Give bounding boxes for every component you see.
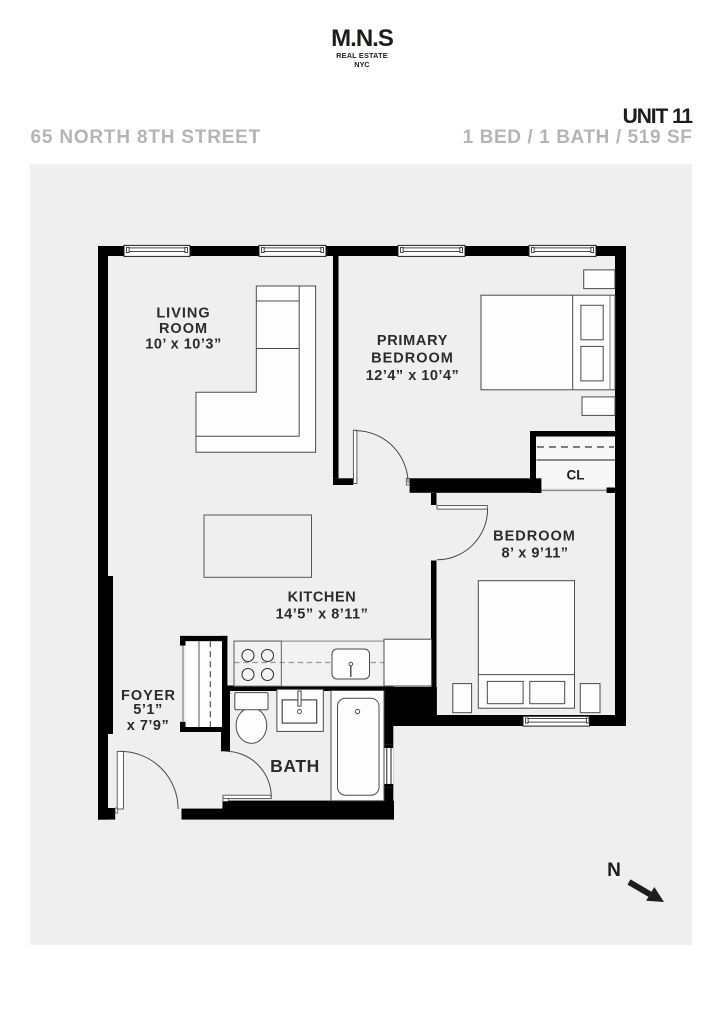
svg-text:CL: CL — [567, 468, 585, 483]
svg-text:5’1”: 5’1” — [133, 702, 162, 718]
svg-text:8’ x 9’11”: 8’ x 9’11” — [501, 546, 568, 562]
svg-text:10’ x 10’3”: 10’ x 10’3” — [145, 337, 221, 353]
svg-text:12’4” x 10’4”: 12’4” x 10’4” — [366, 368, 460, 384]
svg-text:N: N — [607, 860, 621, 881]
svg-text:ROOM: ROOM — [159, 321, 208, 337]
svg-text:LIVING: LIVING — [156, 306, 210, 322]
svg-text:PRIMARY: PRIMARY — [377, 333, 448, 349]
svg-text:BATH: BATH — [270, 756, 320, 776]
svg-text:BEDROOM: BEDROOM — [371, 351, 454, 367]
svg-text:x 7’9”: x 7’9” — [127, 718, 170, 734]
svg-text:BEDROOM: BEDROOM — [493, 529, 576, 545]
svg-text:KITCHEN: KITCHEN — [288, 590, 357, 606]
svg-text:14’5” x 8’11”: 14’5” x 8’11” — [276, 607, 369, 623]
